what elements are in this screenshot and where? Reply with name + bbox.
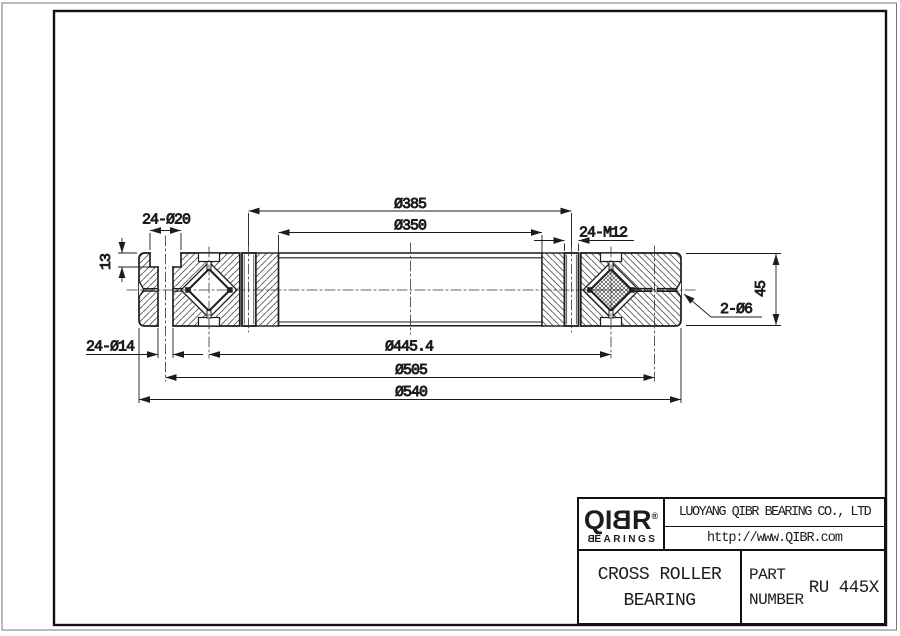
inner-ring-right-section [542, 253, 579, 326]
dim-grease-holes: 2-Ø6 [684, 294, 762, 318]
title-block: QIBR® BEARINGS LUOYANG QIBR BEARING CO.,… [577, 497, 886, 625]
dim-bore-label: Ø350 [394, 218, 427, 235]
brand-letter: Q [584, 505, 605, 535]
title-block-header-row: QIBR® BEARINGS LUOYANG QIBR BEARING CO.,… [579, 499, 884, 551]
title-block-detail-row: CROSS ROLLER BEARING PART NUMBER RU 445X [579, 551, 884, 625]
company-cell: LUOYANG QIBR BEARING CO., LTD http://www… [665, 499, 884, 549]
brand-sub-rest: EARINGS [594, 534, 657, 545]
outer-ring-right-section [581, 253, 681, 326]
brand-logo-word: QIBR® [584, 503, 658, 533]
company-name: LUOYANG QIBR BEARING CO., LTD [665, 499, 884, 527]
dim-grease-holes-label: 2-Ø6 [720, 301, 753, 318]
dim-through-holes: 24-Ø14 [86, 339, 203, 356]
product-name-line2: BEARING [623, 588, 695, 614]
part-label-line2: NUMBER [749, 588, 804, 613]
company-website: http://www.QIBR.com [665, 527, 884, 549]
dim-counterbore-holes-label: 24-Ø20 [142, 212, 191, 229]
inner-ring-left-section [242, 253, 279, 326]
product-name-line1: CROSS ROLLER [598, 562, 722, 588]
dim-section-height: 45 [753, 254, 776, 325]
brand-letter: R [632, 505, 652, 535]
product-name-cell: CROSS ROLLER BEARING [579, 551, 742, 625]
dim-inner-bolt-circle: Ø385 [249, 196, 572, 213]
dim-outer-diameter: Ø540 [139, 384, 681, 401]
brand-letter-mirrored-b: B [612, 507, 632, 533]
part-label-line1: PART [749, 563, 804, 588]
brand-logo: QIBR® BEARINGS [579, 499, 665, 549]
dim-counterbore-holes: 24-Ø20 [142, 212, 191, 231]
dim-outer-bolt-circle-label: Ø505 [395, 362, 428, 379]
brand-logo-subtitle: BEARINGS [585, 534, 658, 545]
drawing-page: { "sheet": { "background": "#ffffff", "i… [0, 0, 900, 636]
registered-mark: ® [651, 511, 658, 521]
dim-inner-bolt-circle-label: Ø385 [394, 196, 427, 213]
part-number-cell: PART NUMBER RU 445X [742, 551, 884, 625]
dim-counterbore-depth: 13 [98, 238, 122, 282]
dim-bore: Ø350 [279, 218, 543, 235]
bearing-section-view [127, 236, 697, 381]
dim-section-height-label: 45 [753, 280, 770, 297]
dim-counterbore-depth-label: 13 [98, 253, 115, 270]
part-number-value: RU 445X [804, 578, 884, 598]
outer-ring-left-section [139, 251, 240, 327]
dim-tapped-holes: 24-M12 [534, 225, 634, 242]
dim-tapped-holes-label: 24-M12 [579, 225, 627, 242]
dim-through-holes-label: 24-Ø14 [86, 339, 135, 356]
part-number-label: PART NUMBER [749, 563, 804, 613]
dim-outer-diameter-label: Ø540 [395, 384, 428, 401]
brand-sub-mirrored-b: B [585, 534, 595, 545]
dim-roller-pitch-circle: Ø445.4 [209, 339, 611, 356]
dim-outer-bolt-circle: Ø505 [166, 362, 655, 379]
dim-roller-pitch-circle-label: Ø445.4 [385, 339, 434, 356]
